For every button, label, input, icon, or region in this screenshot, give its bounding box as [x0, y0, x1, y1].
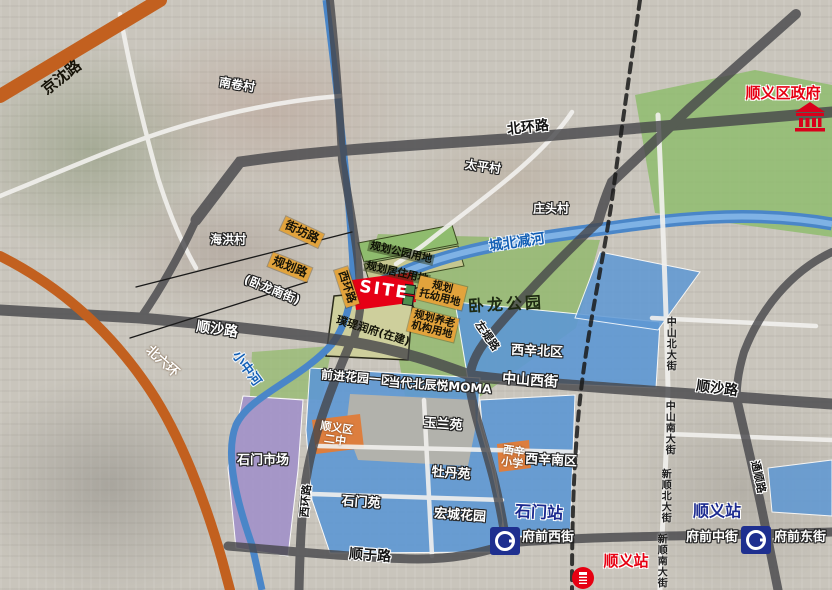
station-label-shunyi-rail: 顺义站	[603, 554, 648, 570]
beiliuhuan-road	[0, 256, 230, 590]
zone-bottom-right	[768, 460, 832, 516]
road-label-fuqian-east: 府前东街	[774, 531, 826, 545]
road-label-fuqian-west: 府前西街	[522, 531, 574, 545]
area-label-shimen-yuan: 石门苑	[341, 495, 381, 511]
subway-logo-shimen-icon	[490, 527, 520, 555]
area-label-shimen-market: 石门市场	[237, 454, 289, 468]
school-label-xixin-primary: 西辛 小学	[501, 444, 526, 470]
area-label-mudan: 牡丹苑	[431, 466, 471, 482]
site-location-map: 京沈路 南卷村 北环路 顺义区政府 太平村 庄头村 海洪村 城北减河 街坊路 规…	[0, 0, 832, 590]
government-label: 顺义区政府	[745, 86, 820, 102]
road-label-fuqian-middle: 府前中街	[686, 531, 738, 545]
xixin-primary-line2: 小学	[501, 455, 524, 469]
area-label-yulan: 玉兰苑	[423, 417, 463, 433]
expressways	[0, 0, 230, 590]
school-label-shunyi-no2: 顺义区 二中	[318, 420, 354, 447]
area-label-xixin-north: 西辛北区	[511, 344, 564, 360]
road-label-zhongshan-north-ave: 中山北大街	[664, 317, 675, 372]
road-label-shunyu: 顺于路	[349, 547, 392, 565]
zone-layer	[228, 70, 832, 556]
road-label-xihuan-south: 西环路	[299, 484, 313, 518]
subway-logo-shunyi-icon	[741, 526, 771, 554]
village-label-haihong: 海洪村	[210, 234, 246, 247]
railway-station-icon	[572, 567, 594, 589]
village-label-zhuangtou: 庄头村	[533, 203, 569, 216]
road-label-xinshun-south-ave: 新顺南大街	[655, 534, 666, 589]
road-label-zhongshan-south-ave: 中山南大街	[663, 401, 674, 456]
beihuan-west-stub	[142, 220, 196, 316]
station-label-shunyi-metro: 顺义站	[693, 504, 741, 521]
station-label-shimen: 石门站	[515, 503, 564, 522]
road-label-xinshun-north-ave: 新顺北大街	[659, 469, 670, 524]
area-label-xixin-south: 西辛南区	[525, 453, 578, 469]
